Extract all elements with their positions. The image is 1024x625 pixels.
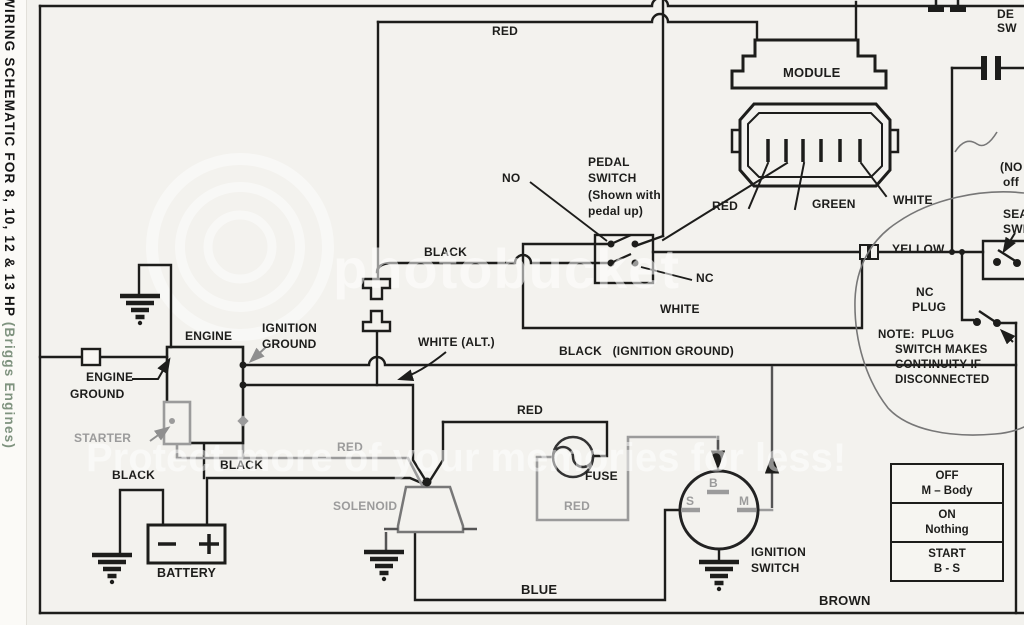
ignition-ground-icon xyxy=(699,562,739,591)
edge-seat-label-1: SEA xyxy=(1003,208,1024,222)
wire-label-white-alt: WHITE (ALT.) xyxy=(418,336,495,350)
battery-symbol xyxy=(148,525,225,563)
wire-label-red-fuse-loop: RED xyxy=(564,500,590,514)
no-label: NO xyxy=(502,172,520,186)
engine-label: ENGINE xyxy=(185,330,232,344)
table-cell: ON xyxy=(938,508,955,522)
table-cell: OFF xyxy=(936,469,959,483)
battery-label: BATTERY xyxy=(157,566,216,580)
nc-label: NC xyxy=(696,272,714,286)
table-cell: B - S xyxy=(934,562,960,576)
page-title-paren: (Briggs Engines) xyxy=(2,322,17,449)
edge-no-label-1: (NO xyxy=(1000,161,1023,175)
pedal-switch-label-1: PEDAL xyxy=(588,156,630,170)
engine-ground-icon xyxy=(120,296,160,325)
schematic-canvas xyxy=(0,0,1024,625)
page-title-vertical: WIRING SCHEMATIC FOR 8, 10, 12 & 13 HP (… xyxy=(2,0,17,625)
table-cell: START xyxy=(928,547,965,561)
engine-ground-label-1: ENGINE xyxy=(86,371,133,385)
solenoid-label: SOLENOID xyxy=(333,500,397,514)
terminal-m-label: M xyxy=(739,495,749,509)
solenoid-ground-icon xyxy=(364,552,404,581)
ignition-switch-label-1: IGNITION xyxy=(751,546,806,560)
battery-plus-icon xyxy=(199,534,219,554)
scan-squiggle xyxy=(955,132,997,152)
nc-plug-symbol xyxy=(973,311,1013,342)
page-title-main: WIRING SCHEMATIC FOR 8, 10, 12 & 13 HP xyxy=(2,0,17,322)
battery-ground-icon xyxy=(92,555,132,584)
edge-seat-label-2: SWI xyxy=(1003,223,1024,237)
wire-label-yellow: YELLOW xyxy=(892,243,945,257)
ignition-ground-label-1: IGNITION xyxy=(262,322,317,336)
wires-black xyxy=(40,0,1024,613)
pedal-switch-note-1: (Shown with xyxy=(588,189,661,203)
ignition-switch-label-2: SWITCH xyxy=(751,562,800,576)
wire-label-black-pedal: BLACK xyxy=(424,246,467,260)
switch-position-table: OFF M – Body ON Nothing START B - S xyxy=(890,463,1004,582)
table-row: ON Nothing xyxy=(892,504,1002,543)
note-line-4: DISCONNECTED xyxy=(895,374,989,387)
table-row: START B - S xyxy=(892,543,1002,580)
wire-label-red-fuse-top: RED xyxy=(517,404,543,418)
table-row: OFF M – Body xyxy=(892,465,1002,504)
engine-ground-label-2: GROUND xyxy=(70,388,125,402)
wire-label-black-battery-feed: BLACK xyxy=(220,459,263,473)
inline-connector-vertical xyxy=(363,279,390,331)
wire-label-black-ignition-ground: BLACK (IGNITION GROUND) xyxy=(559,345,734,359)
inline-connector-top-cut xyxy=(928,0,966,9)
module-label: MODULE xyxy=(783,66,841,81)
terminal-s-label: S xyxy=(686,495,694,509)
module-pin-green-label: GREEN xyxy=(812,198,856,212)
module-connector xyxy=(732,104,898,186)
note-line-3: CONTINUITY IF xyxy=(895,359,981,372)
fuse-label: FUSE xyxy=(585,470,618,484)
wire-label-red-starter: RED xyxy=(337,441,363,455)
table-cell: M – Body xyxy=(921,484,972,498)
edge-deck-label-1: DE xyxy=(997,8,1014,22)
nc-plug-label-1: NC xyxy=(916,286,934,300)
seat-switch-symbol xyxy=(949,233,1024,279)
wire-label-brown: BROWN xyxy=(819,594,871,609)
edge-deck-label-2: SW xyxy=(997,22,1017,36)
module-pin-white-label: WHITE xyxy=(893,194,933,208)
starter-symbol xyxy=(164,402,190,444)
module-pin-red-label: RED xyxy=(712,200,738,214)
wire-label-red-top: RED xyxy=(492,25,518,39)
watermark-logo-rings xyxy=(152,159,328,335)
pedal-switch-label-2: SWITCH xyxy=(588,172,637,186)
terminal-b-label: B xyxy=(709,477,718,491)
note-line-1: NOTE: PLUG xyxy=(878,329,954,342)
wire-label-blue: BLUE xyxy=(521,583,557,598)
pedal-switch-note-2: pedal up) xyxy=(588,205,643,219)
solenoid-symbol xyxy=(384,478,477,553)
starter-label: STARTER xyxy=(74,432,131,446)
table-cell: Nothing xyxy=(925,523,968,537)
wire-label-black-battery-ground: BLACK xyxy=(112,469,155,483)
nc-plug-label-2: PLUG xyxy=(912,301,946,315)
ignition-switch-symbol xyxy=(680,471,758,549)
inline-connector-right xyxy=(984,56,998,80)
note-line-2: SWITCH MAKES xyxy=(895,344,987,357)
ignition-ground-label-2: GROUND xyxy=(262,338,317,352)
wire-label-white-lower: WHITE xyxy=(660,303,700,317)
schematic-page: RED MODULE RED GREEN WHITE PEDAL SWITCH … xyxy=(0,0,1024,625)
edge-no-label-2: off xyxy=(1003,176,1019,190)
